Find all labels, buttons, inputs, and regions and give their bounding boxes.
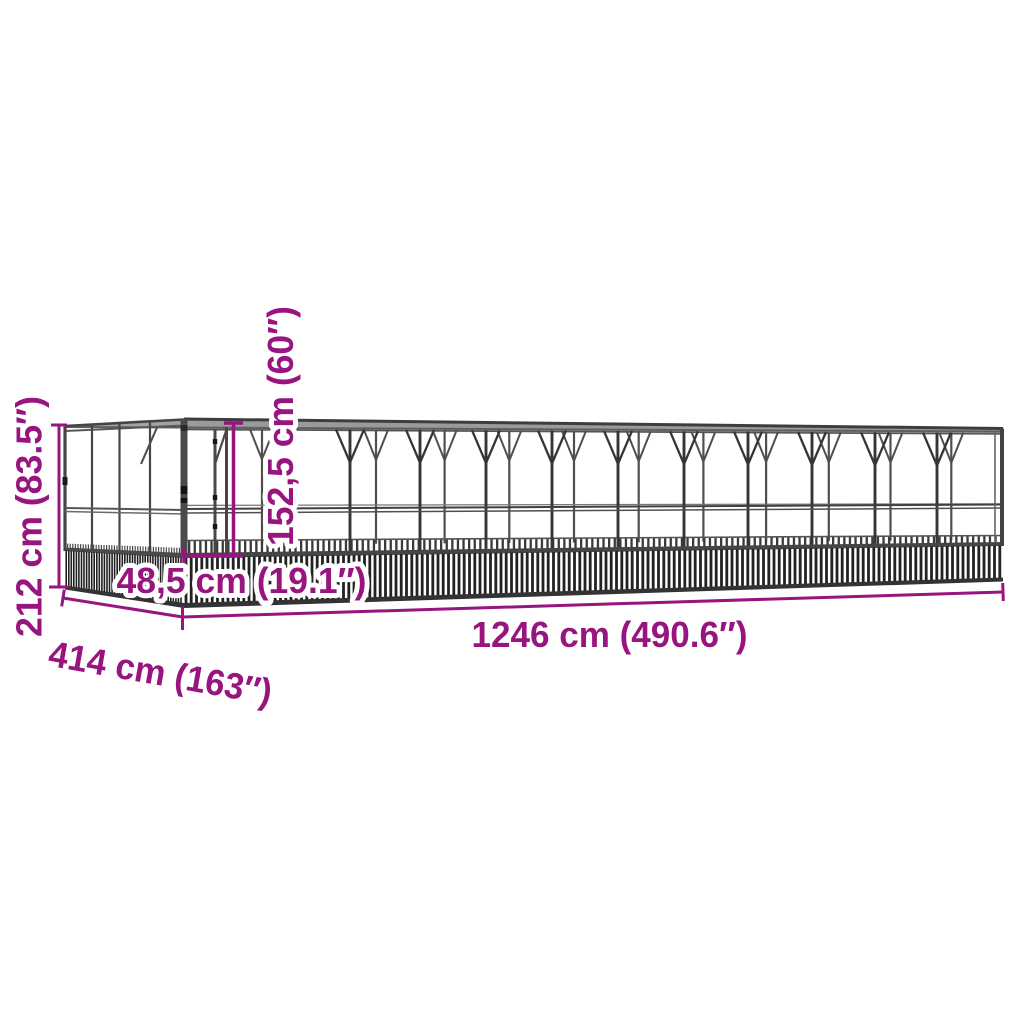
svg-text:212 cm (83.5″): 212 cm (83.5″)	[9, 396, 50, 637]
svg-text:1246 cm (490.6″): 1246 cm (490.6″)	[472, 614, 748, 655]
svg-text:48,5 cm (19.1″): 48,5 cm (19.1″)	[117, 560, 367, 601]
svg-text:152,5 cm (60″): 152,5 cm (60″)	[260, 306, 301, 546]
